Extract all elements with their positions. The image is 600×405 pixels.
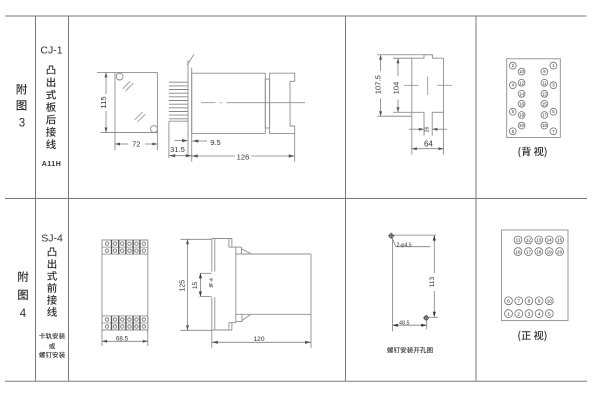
- svg-text:68.5: 68.5: [116, 336, 129, 343]
- svg-text:20: 20: [557, 249, 563, 254]
- svg-text:16: 16: [519, 101, 524, 106]
- svg-text:48.5: 48.5: [399, 320, 410, 326]
- svg-text:115: 115: [99, 96, 108, 108]
- svg-text:125: 125: [179, 280, 186, 292]
- svg-text:2-φ4.5: 2-φ4.5: [397, 242, 412, 248]
- svg-text:18: 18: [519, 113, 524, 118]
- svg-text:120: 120: [253, 336, 264, 343]
- svg-text:26: 26: [425, 127, 431, 133]
- svg-text:126: 126: [237, 152, 250, 161]
- svg-text:13: 13: [536, 238, 542, 243]
- svg-text:9.5: 9.5: [210, 138, 221, 147]
- svg-text:13: 13: [542, 91, 547, 96]
- svg-text:7: 7: [517, 299, 520, 304]
- svg-text:107.5: 107.5: [373, 75, 382, 94]
- svg-text:SJ-4: SJ-4: [41, 233, 63, 245]
- svg-text:CJ-1: CJ-1: [40, 45, 62, 57]
- svg-text:17: 17: [542, 113, 547, 118]
- svg-text:20: 20: [519, 123, 524, 128]
- svg-text:3: 3: [19, 118, 25, 130]
- svg-text:4: 4: [538, 311, 541, 316]
- svg-text:10: 10: [519, 69, 524, 74]
- svg-text:113: 113: [429, 276, 436, 287]
- svg-text:19: 19: [542, 123, 547, 128]
- svg-text:17: 17: [526, 249, 532, 254]
- svg-text:15: 15: [192, 282, 199, 290]
- svg-text:4: 4: [20, 308, 27, 320]
- svg-text:12: 12: [526, 238, 532, 243]
- svg-text:10: 10: [547, 299, 553, 304]
- svg-text:15: 15: [557, 238, 563, 243]
- svg-text:31.5: 31.5: [170, 145, 185, 154]
- svg-text:12: 12: [519, 80, 524, 85]
- svg-text:18: 18: [536, 249, 542, 254]
- svg-text:19: 19: [547, 249, 553, 254]
- svg-text:11: 11: [542, 80, 547, 85]
- svg-text:6: 6: [507, 299, 510, 304]
- svg-text:64: 64: [424, 139, 433, 148]
- svg-text:5: 5: [548, 311, 551, 316]
- svg-text:72: 72: [132, 140, 140, 149]
- svg-text:2: 2: [517, 311, 520, 316]
- svg-text:104: 104: [391, 82, 400, 95]
- svg-text:14: 14: [519, 91, 524, 96]
- svg-text:15: 15: [542, 101, 547, 106]
- svg-text:11: 11: [516, 238, 521, 243]
- svg-text:9: 9: [538, 299, 541, 304]
- svg-text:16: 16: [515, 249, 521, 254]
- svg-text:8: 8: [528, 299, 531, 304]
- svg-text:14: 14: [547, 238, 553, 243]
- svg-text:A11H: A11H: [42, 161, 62, 168]
- svg-text:3: 3: [528, 311, 531, 316]
- svg-text:1: 1: [507, 311, 510, 316]
